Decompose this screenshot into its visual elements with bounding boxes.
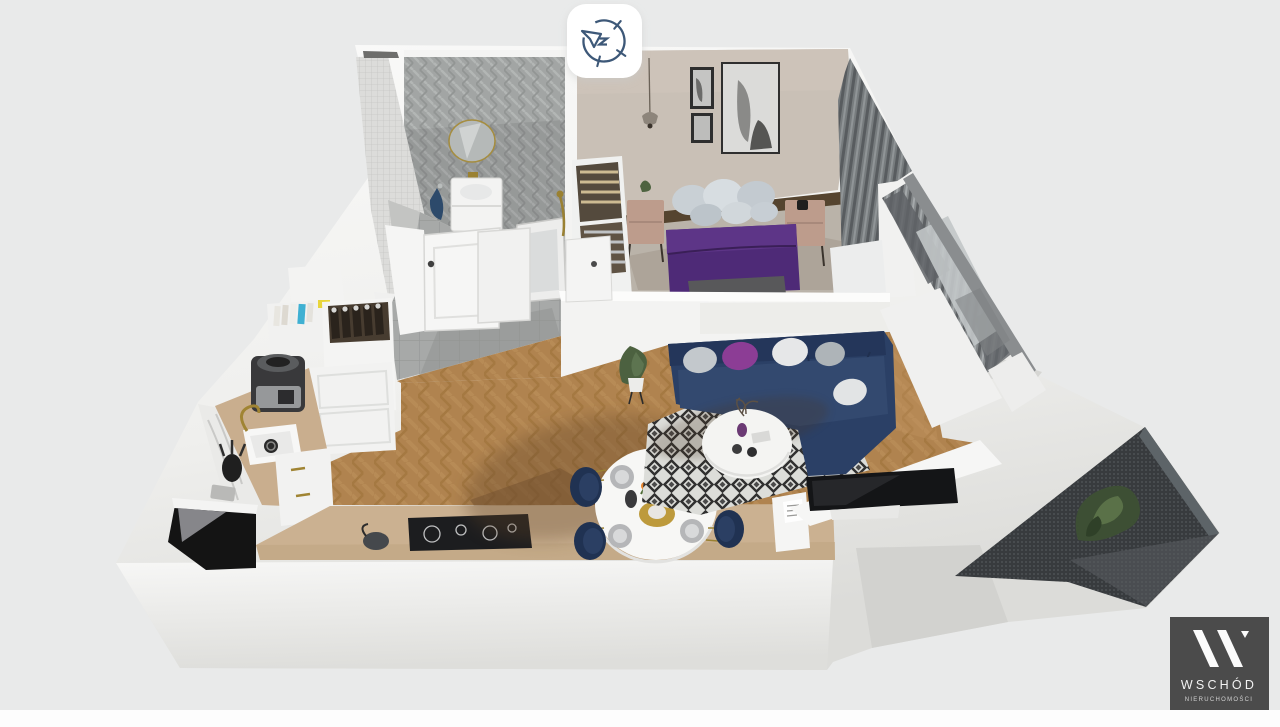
svg-text:WSCHÓD: WSCHÓD	[1181, 677, 1257, 692]
svg-text:NIERUCHOMOŚCI: NIERUCHOMOŚCI	[1185, 695, 1254, 703]
